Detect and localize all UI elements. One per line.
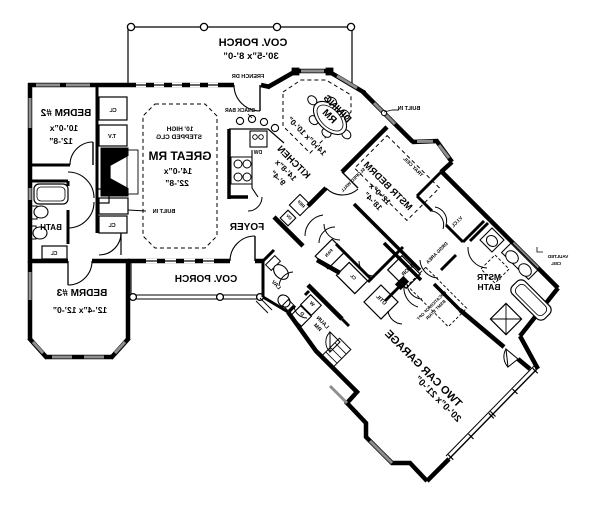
svg-text:CEIL: CEIL [551,261,562,266]
svg-text:BATH: BATH [478,282,501,292]
svg-text:T.V: T.V [108,134,116,140]
svg-text:14’-0”x: 14’-0”x [164,166,193,176]
svg-text:10’-0”x: 10’-0”x [50,123,79,133]
svg-text:DW: DW [254,150,263,156]
svg-text:CL: CL [109,108,117,114]
svg-text:BUILT IN: BUILT IN [153,209,176,215]
svg-text:12’-4”x 12’-0”: 12’-4”x 12’-0” [53,305,107,315]
svg-text:22’-8”: 22’-8” [165,178,189,188]
svg-text:GREAT RM: GREAT RM [148,149,211,163]
svg-text:12’-8”: 12’-8” [49,136,73,146]
svg-text:10’ HIGH: 10’ HIGH [166,126,193,133]
svg-text:COV. PORCH: COV. PORCH [175,274,237,285]
svg-text:FOYER: FOYER [229,222,264,233]
svg-text:BATH: BATH [40,223,62,232]
svg-text:SNACK BAR: SNACK BAR [225,108,255,114]
svg-text:BUILT IN: BUILT IN [398,106,421,112]
svg-text:STEPPED CLG: STEPPED CLG [156,134,202,141]
svg-text:VAULTED: VAULTED [547,254,568,259]
svg-text:CL: CL [51,251,58,257]
svg-text:COV. PORCH: COV. PORCH [219,37,288,49]
svg-text:FRENCH DR: FRENCH DR [232,74,264,80]
svg-text:BEDRM #3: BEDRM #3 [56,288,107,299]
svg-text:CL: CL [108,223,116,229]
svg-text:BEDRM #2: BEDRM #2 [40,108,91,119]
svg-text:30’-5”x 8’-0”: 30’-5”x 8’-0” [223,51,279,62]
